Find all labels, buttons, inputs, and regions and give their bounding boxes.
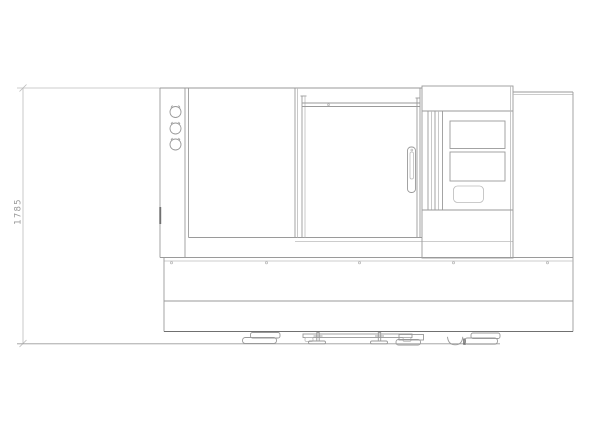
cabinet-outline xyxy=(159,88,422,258)
latch-knob xyxy=(170,122,181,134)
door-handle xyxy=(408,147,416,193)
machine-base xyxy=(160,258,573,332)
keypad xyxy=(454,186,484,203)
screen-lower xyxy=(450,152,505,181)
left-latch-column xyxy=(170,88,189,258)
latch-knob xyxy=(170,106,181,118)
leveling-feet xyxy=(243,333,501,346)
height-dimension-label: 1785 xyxy=(14,198,24,224)
base-screws xyxy=(170,262,548,264)
right-cabinet xyxy=(513,92,573,332)
rail-screw xyxy=(328,104,330,106)
latch-knob xyxy=(170,138,181,150)
control-panel xyxy=(422,86,513,258)
panel-hinge-stripes xyxy=(428,111,443,210)
foot-pad xyxy=(465,333,501,344)
cnc-machine-front-elevation: 1785 xyxy=(0,0,600,448)
height-dimension: 1785 xyxy=(14,85,161,348)
technical-drawing-canvas: 1785 xyxy=(0,0,600,448)
sliding-door xyxy=(295,88,420,238)
left-front-panel xyxy=(189,238,514,242)
hinge-mark xyxy=(159,207,161,224)
foot-pad xyxy=(243,333,281,344)
screen-upper xyxy=(450,121,505,149)
